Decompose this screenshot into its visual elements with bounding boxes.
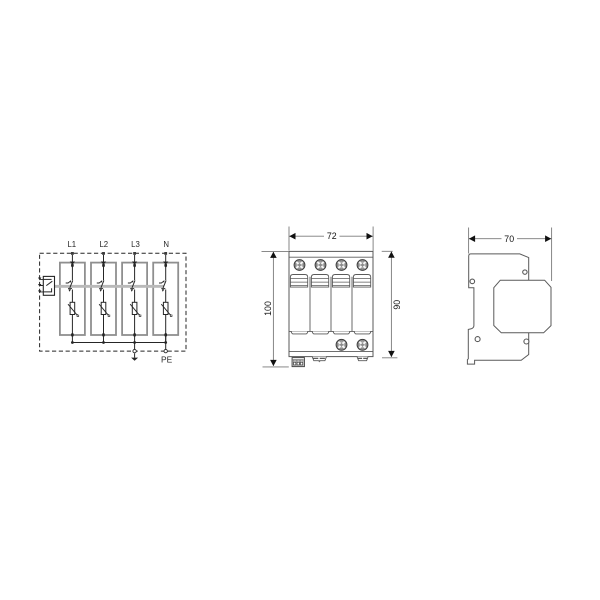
- svg-text:L2: L2: [99, 240, 108, 249]
- svg-text:L3: L3: [131, 240, 140, 249]
- svg-text:L1: L1: [67, 240, 76, 249]
- svg-text:100: 100: [263, 301, 273, 316]
- svg-text:N: N: [163, 240, 169, 249]
- svg-text:70: 70: [504, 234, 514, 244]
- svg-text:72: 72: [327, 231, 337, 241]
- svg-text:90: 90: [392, 300, 402, 310]
- svg-text:PE: PE: [161, 354, 173, 364]
